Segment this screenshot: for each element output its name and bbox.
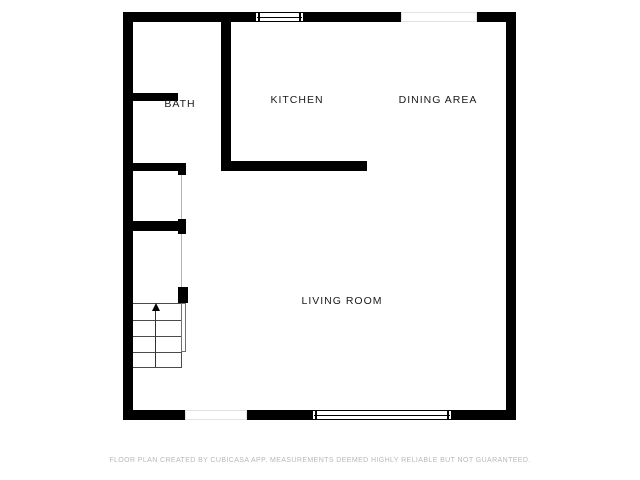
- top-wall-segment-left: [123, 12, 255, 22]
- window-divider-left: [315, 411, 317, 419]
- disclaimer-text: FLOOR PLAN CREATED BY CUBICASA APP. MEAS…: [0, 457, 640, 464]
- hall-wall-upper: [123, 163, 180, 171]
- right-wall: [506, 12, 516, 420]
- stair-direction-line: [155, 311, 156, 367]
- stair-tread-line: [133, 320, 181, 321]
- bottom-wall-segment-mid: [247, 410, 312, 420]
- room-label-kitchen: KITCHEN: [247, 94, 347, 106]
- top-wall-segment-mid: [304, 12, 401, 22]
- top-opening: [401, 12, 477, 22]
- floor-plan: BATH KITCHEN DINING AREA LIVING ROOM FLO…: [0, 0, 640, 480]
- hall-wall-lower: [123, 221, 180, 231]
- staircase: [133, 303, 182, 368]
- room-label-dining-area: DINING AREA: [378, 94, 498, 106]
- room-label-bath: BATH: [130, 98, 230, 110]
- bottom-wall-segment-right: [452, 410, 516, 420]
- stair-rail-outline: [181, 303, 186, 352]
- bottom-wall-segment-left: [123, 410, 185, 420]
- stair-tread-line: [133, 336, 181, 337]
- left-wall: [123, 12, 133, 420]
- top-window: [255, 12, 304, 22]
- bottom-window: [312, 410, 452, 420]
- stair-wall-stub: [178, 287, 188, 303]
- opening-guide-line: [181, 175, 182, 219]
- room-label-living-room: LIVING ROOM: [282, 295, 402, 307]
- bottom-doorway-opening: [185, 410, 247, 420]
- window-divider-right: [299, 13, 301, 21]
- up-arrow-icon: [152, 303, 160, 311]
- window-divider-left: [258, 13, 260, 21]
- hall-wall-lower-cap: [178, 219, 186, 234]
- window-midline: [257, 17, 302, 18]
- opening-guide-line: [181, 234, 182, 287]
- hall-wall-upper-cap: [178, 163, 186, 175]
- window-divider-right: [447, 411, 449, 419]
- window-midline: [314, 415, 450, 416]
- stair-tread-line: [133, 352, 181, 353]
- kitchen-bottom-wall: [221, 161, 367, 171]
- bath-kitchen-wall: [221, 22, 231, 171]
